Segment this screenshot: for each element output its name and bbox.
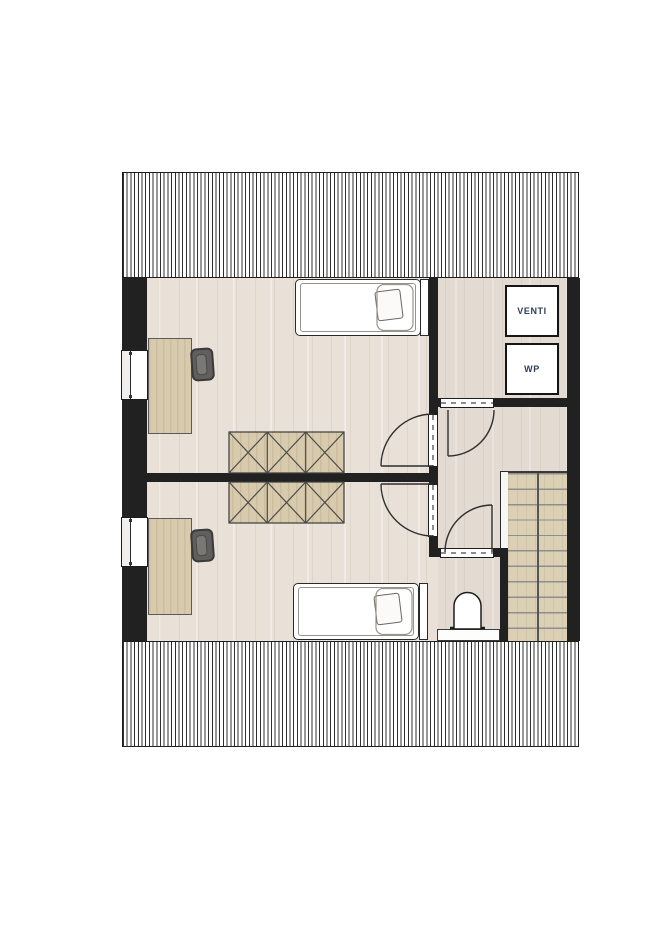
ventilation-unit-box: VENTI [505,285,559,337]
pillow-top-bed [374,289,403,322]
desk-top-bedroom [148,338,192,434]
window-hinge-dot [129,352,132,355]
ventilation-unit-label: VENTI [517,306,547,316]
door-dash-line [433,415,434,466]
window-mullion [130,518,131,566]
chair-top-bedroom [190,347,215,382]
window-frame-shade [122,518,130,566]
door-frame-wc [440,548,494,558]
chair-bottom-bedroom [190,528,215,563]
door-frame-techroom [440,398,494,408]
pillow-bottom-bed [373,593,402,626]
door-dash-line [441,553,493,554]
chair-seat [195,535,207,557]
roof-hatch-band-top [122,172,579,278]
window-hinge-dot [129,519,132,522]
window-hinge-dot [129,395,132,398]
door-frame-top-bedroom [428,414,438,467]
door-frame-bottom-bedroom [428,484,438,537]
window-bottom-bedroom [121,517,148,567]
staircase [508,471,567,641]
heat-pump-label: WP [524,364,540,374]
door-dash-line [433,485,434,536]
roof-hatch-band-bottom [122,641,579,747]
chair-seat [195,354,207,376]
toilet-cistern [437,629,500,641]
stair-center-line [537,473,539,641]
heat-pump-box: WP [505,343,559,395]
wall-left-exterior [122,278,147,641]
floor-plan-canvas: VENTI WP [0,0,665,941]
wall-right-exterior [567,278,580,641]
window-mullion [130,351,131,399]
window-hinge-dot [129,562,132,565]
wall-bedroom-divider [147,473,429,482]
desk-bottom-bedroom [148,518,192,615]
window-frame-shade [122,351,130,399]
window-top-bedroom [121,350,148,400]
door-dash-line [441,403,493,404]
bed-headboard-bottom [419,583,428,640]
bed-headboard-top [420,279,429,336]
